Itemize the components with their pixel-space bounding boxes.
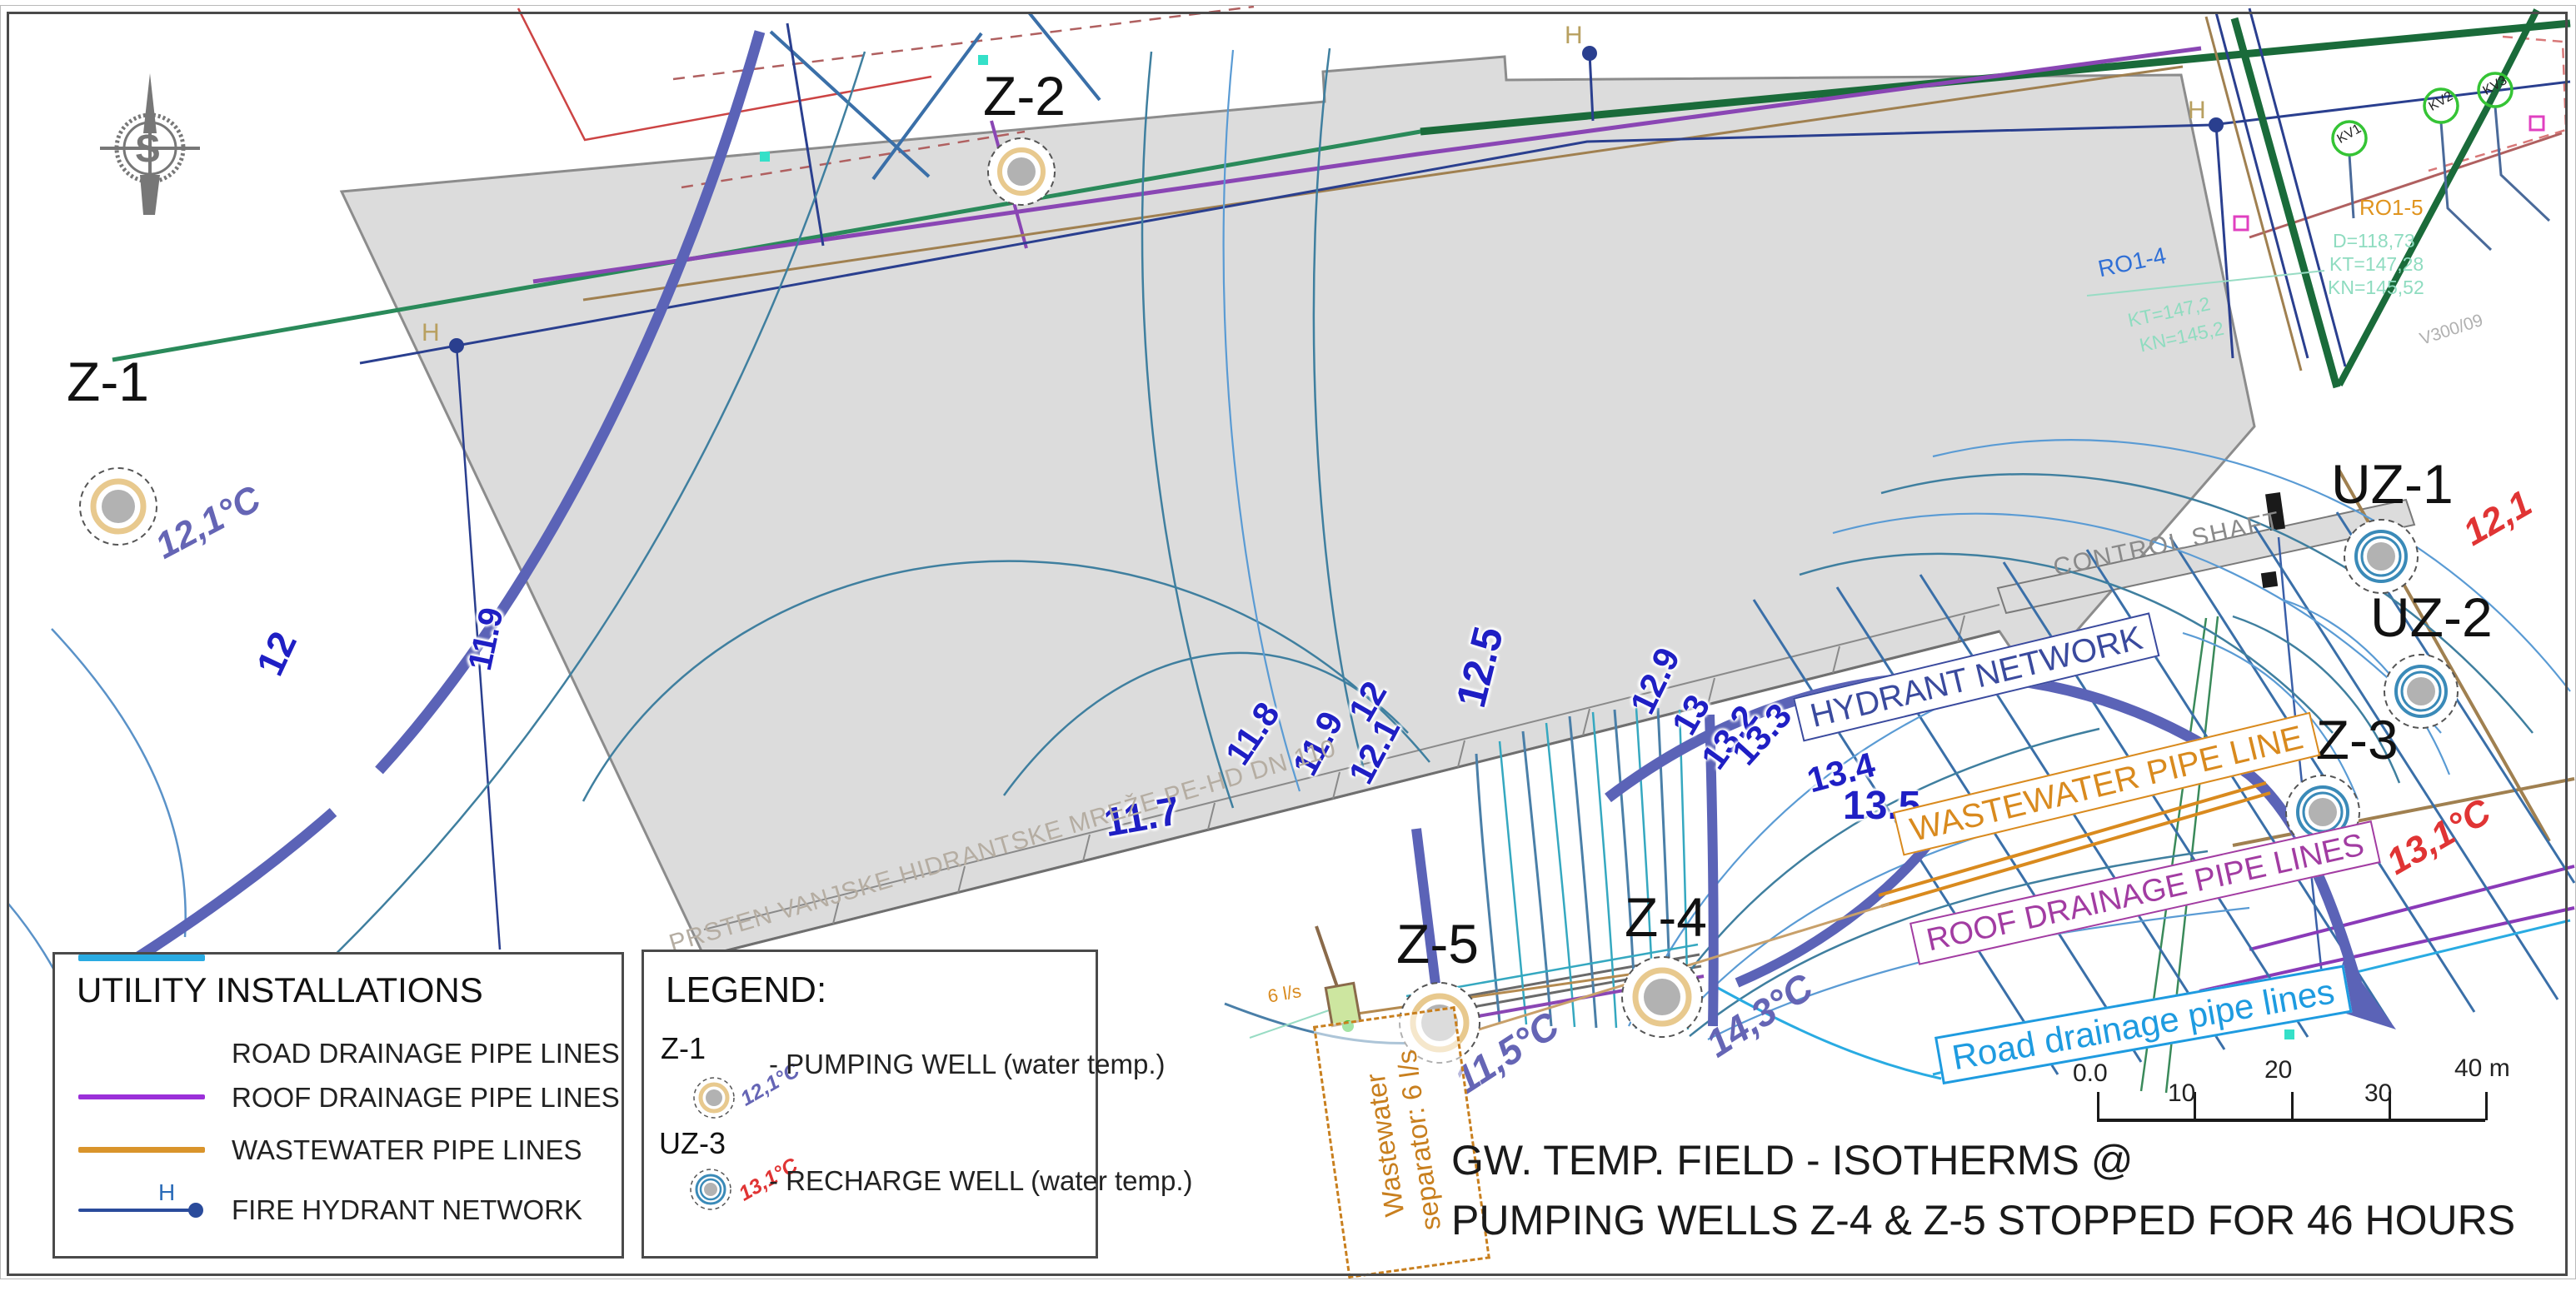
utility-legend-item: ROAD DRAINAGE PIPE LINES [232, 1039, 620, 1067]
fire-hydrant-dot [188, 1203, 203, 1218]
well-label-z4: Z-4 [1625, 890, 1707, 945]
scale-label: 0.0 [2073, 1059, 2108, 1088]
well-symbol-z1 [80, 468, 157, 545]
scale-label: 20 [2264, 1056, 2292, 1084]
ro15-kn: KN=145,52 [2328, 278, 2424, 297]
well-label-z1: Z-1 [67, 354, 149, 409]
hydrant-dot-icon [2209, 117, 2224, 132]
compass-letter: S [135, 129, 161, 167]
hydrant-dot-icon [1582, 46, 1597, 61]
well-symbol-z2 [988, 138, 1055, 205]
ro15-kt: KT=147,28 [2329, 255, 2424, 274]
legend-z1-id: Z-1 [661, 1034, 706, 1064]
well-label-z2: Z-2 [983, 68, 1066, 123]
scale-tick [2291, 1092, 2294, 1120]
scale-tick [2097, 1092, 2099, 1120]
utility-legend-title: UTILITY INSTALLATIONS [77, 973, 483, 1008]
well-legend-title: LEGEND: [666, 972, 826, 1009]
scale-label: 30 [2364, 1079, 2392, 1108]
hydrant-dot-icon [449, 338, 464, 353]
wastewater-separator-label: Wastewater separator: 6 l/s [1355, 1048, 1448, 1238]
well-label-uz2: UZ-2 [2370, 590, 2493, 645]
well-label-z5: Z-5 [1396, 916, 1479, 971]
hydrant-h-label: H [422, 321, 440, 346]
fire-hydrant-swatch [78, 1209, 195, 1212]
site-plan: S Z-1 Z-2 Z-5 Z-4 UZ-1 UZ-2 UZ-3 12,1°C … [0, 0, 2576, 1306]
legend-uz3-id: UZ-3 [659, 1129, 726, 1159]
scale-label: 40 m [2454, 1054, 2510, 1083]
ro15-name: RO1-5 [2359, 197, 2424, 218]
legend-pumping-desc: - PUMPING WELL (water temp.) [769, 1050, 1166, 1078]
map-title-line2: PUMPING WELLS Z-4 & Z-5 STOPPED FOR 46 H… [1451, 1199, 2515, 1241]
utility-legend-item: ROOF DRAINAGE PIPE LINES [232, 1084, 620, 1111]
roof-drainage-swatch [78, 1094, 205, 1099]
well-symbol-z4 [1622, 957, 1702, 1037]
map-title-line1: GW. TEMP. FIELD - ISOTHERMS @ [1451, 1139, 2133, 1181]
scale-label: 10 [2168, 1079, 2195, 1108]
hydrant-h-label: H [1565, 23, 1583, 48]
road-drainage-swatch [78, 955, 205, 961]
legend-recharge-symbol [684, 1163, 737, 1216]
scale-tick [2485, 1092, 2488, 1120]
ro15-d: D=118,73 [2333, 232, 2415, 251]
fire-hydrant-h: H [158, 1181, 175, 1204]
wastewater-swatch [78, 1147, 205, 1153]
well-legend-box: LEGEND: Z-1 12,1°C - PUMPING WELL (water… [642, 950, 1098, 1259]
well-symbol-uz1 [2344, 520, 2418, 593]
well-label-uz1: UZ-1 [2331, 456, 2454, 511]
utility-legend-item: WASTEWATER PIPE LINES [232, 1136, 582, 1164]
utility-legend-box: UTILITY INSTALLATIONS ROAD DRAINAGE PIPE… [52, 952, 624, 1259]
hydrant-h-label: H [2188, 98, 2206, 123]
legend-recharge-desc: - RECHARGE WELL (water temp.) [769, 1167, 1193, 1194]
utility-legend-item: FIRE HYDRANT NETWORK [232, 1196, 582, 1224]
legend-pumping-symbol [687, 1071, 741, 1124]
building-footprint [342, 57, 2414, 956]
